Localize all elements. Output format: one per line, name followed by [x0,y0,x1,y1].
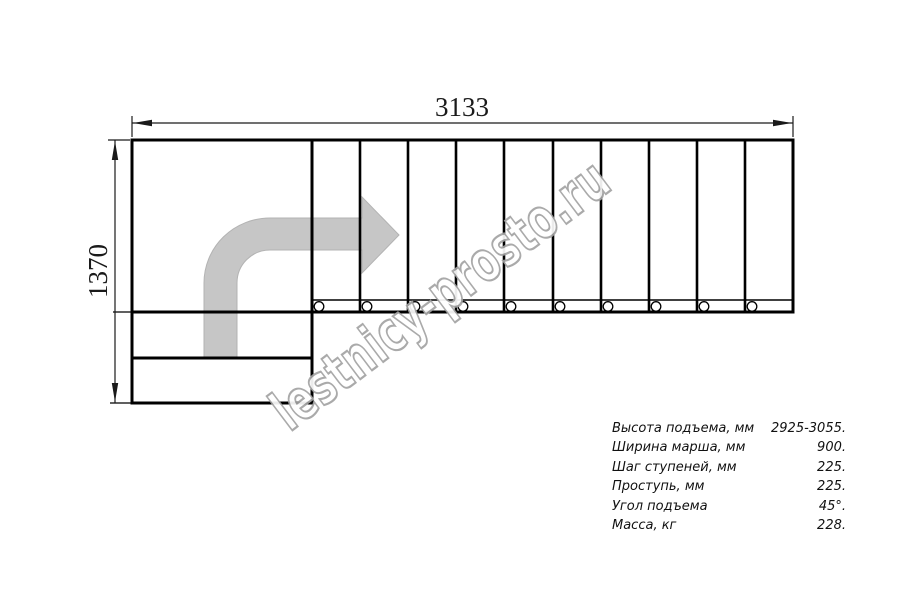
baluster-circle [651,302,661,312]
stair-drawing-canvas: 3133 1370 lestnicy-prosto.ru Высота подъ… [0,0,900,600]
dimension-arrow-up-icon [112,141,118,160]
spec-label: Шаг ступеней, мм [612,458,737,477]
spec-value: 228. [817,516,846,535]
watermark-text: lestnicy-prosto.ru [259,147,623,443]
spec-value: 900. [817,438,846,457]
spec-value: 225. [817,458,846,477]
dimension-arrow-right-icon [773,120,792,126]
baluster-circle [747,302,757,312]
spec-row: Ширина марша, мм 900. [612,438,846,457]
spec-value: 2925-3055. [771,419,846,438]
spec-row: Высота подъема, мм 2925-3055. [612,419,846,438]
dimension-width-label: 3133 [435,92,489,122]
baluster-circle [699,302,709,312]
baluster-circle [314,302,324,312]
dimension-height: 1370 [83,140,130,403]
spec-value: 45°. [819,497,846,516]
baluster-circle [555,302,565,312]
spec-row: Масса, кг 228. [612,516,846,535]
spec-label: Ширина марша, мм [612,438,745,457]
baluster-circle [603,302,613,312]
spec-value: 225. [817,477,846,496]
spec-row: Угол подъема 45°. [612,497,846,516]
spec-row: Шаг ступеней, мм 225. [612,458,846,477]
spec-label: Угол подъема [612,497,708,516]
spec-label: Масса, кг [612,516,676,535]
dimension-width: 3133 [132,92,793,137]
baluster-circle [506,302,516,312]
spec-label: Проступь, мм [612,477,704,496]
specs-table: Высота подъема, мм 2925-3055. Ширина мар… [612,419,846,535]
dimension-height-label: 1370 [83,244,113,298]
spec-label: Высота подъема, мм [612,419,754,438]
dimension-arrow-down-icon [112,383,118,402]
spec-row: Проступь, мм 225. [612,477,846,496]
dimension-arrow-left-icon [133,120,152,126]
